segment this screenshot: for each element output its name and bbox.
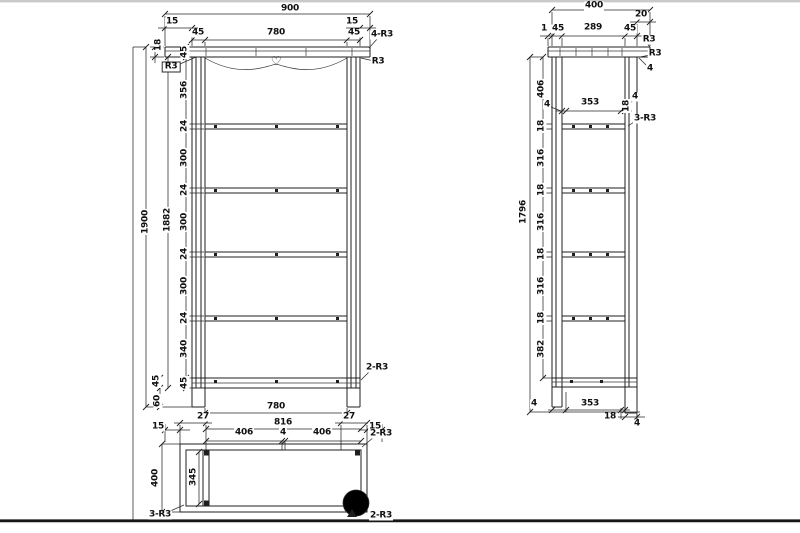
dim-side-289: 289 xyxy=(583,24,603,33)
note-2-r3-plan-bottom: 2-R3 xyxy=(369,512,393,521)
dim-plan-4: 4 xyxy=(279,429,287,438)
note-r3-side-top: R3 xyxy=(642,36,657,45)
dim-side-18-3: 18 xyxy=(538,247,547,261)
note-2-r3-plan-top: 2-R3 xyxy=(369,430,393,439)
dim-chain-45-top: 45 xyxy=(181,45,190,59)
front-posts xyxy=(192,57,360,388)
note-r3-side-mid: R3 xyxy=(648,50,663,59)
note-3-r3-plan: 3-R3 xyxy=(148,511,172,520)
plan-partition xyxy=(203,450,209,506)
dim-side-4-top: 4 xyxy=(646,65,654,74)
dim-side-1: 1 xyxy=(540,25,548,34)
dim-inner-width-bottom: 780 xyxy=(266,403,286,412)
dim-overall-width: 900 xyxy=(280,5,300,14)
dim-side-4-bottom-right: 4 xyxy=(633,420,641,429)
dim-plan-406-right: 406 xyxy=(312,429,332,438)
dim-chain-45-bottom: 45 xyxy=(181,376,190,390)
side-bottom-rail xyxy=(552,378,637,387)
dim-side-316-2: 316 xyxy=(538,212,547,232)
dim-inner-width-top: 780 xyxy=(266,29,286,38)
dim-side-20: 20 xyxy=(634,11,648,20)
dim-chain-300-1: 300 xyxy=(181,148,190,168)
dim-chain-24-3: 24 xyxy=(181,247,190,261)
note-3-r3-side: 3-R3 xyxy=(633,115,657,124)
dim-side-18-4: 18 xyxy=(538,311,547,325)
dim-overhang-right: 15 xyxy=(345,18,359,27)
drawing-canvas: 900151578045454-R31845R3R335624300243002… xyxy=(0,0,800,533)
front-top-rail xyxy=(165,47,370,57)
dim-side-4-bottom-left: 4 xyxy=(530,400,538,409)
dim-side-18-bottom: 18 xyxy=(603,413,617,422)
dim-overall-height: 1900 xyxy=(142,209,151,235)
dim-side-382: 382 xyxy=(538,339,547,359)
dim-side-316-3: 316 xyxy=(538,276,547,296)
generated-details xyxy=(143,7,653,515)
dim-chain-356: 356 xyxy=(181,80,190,100)
note-r3-right: R3 xyxy=(371,58,386,67)
dim-overhang-left: 15 xyxy=(165,18,179,27)
dim-inner-height: 1882 xyxy=(164,207,173,233)
dim-post-width-top-right: 45 xyxy=(347,29,361,38)
dim-side-316-1: 316 xyxy=(538,148,547,168)
dim-side-353-bottom: 353 xyxy=(580,400,600,409)
dim-chain-300-3: 300 xyxy=(181,276,190,296)
dim-side-18-1: 18 xyxy=(538,119,547,133)
dim-side-18-2: 18 xyxy=(538,183,547,197)
technical-drawing xyxy=(0,0,800,533)
dim-side-1796: 1796 xyxy=(520,199,529,225)
dim-top-rail-thickness: 18 xyxy=(155,38,164,52)
plan-detail-circle xyxy=(343,490,369,516)
dim-plan-406-left: 406 xyxy=(234,429,254,438)
dim-plan-345: 345 xyxy=(190,467,199,487)
dim-chain-24-2: 24 xyxy=(181,183,190,197)
dim-plan-400: 400 xyxy=(152,468,161,488)
dim-plan-27-right: 27 xyxy=(342,413,356,422)
front-leader-lines xyxy=(180,38,378,380)
dim-side-4-shelf-left: 4 xyxy=(543,101,551,110)
side-top-rail xyxy=(548,47,650,57)
dim-side-45-right: 45 xyxy=(623,25,637,34)
side-view xyxy=(530,10,656,421)
dim-chain-24-1: 24 xyxy=(181,119,190,133)
plan-corner-blocks xyxy=(204,451,360,506)
dim-chain-340: 340 xyxy=(181,339,190,359)
dim-chain-24-4: 24 xyxy=(181,311,190,325)
dim-side-4-shelf-right: 4 xyxy=(631,93,639,102)
dim-side-406: 406 xyxy=(538,79,547,99)
dim-chain-300-2: 300 xyxy=(181,212,190,232)
heart-icon: ♡ xyxy=(271,55,281,67)
note-r3-left: R3 xyxy=(162,62,181,73)
dim-side-width: 400 xyxy=(584,2,604,11)
dim-side-45-left: 45 xyxy=(551,25,565,34)
dim-plan-816: 816 xyxy=(273,419,293,428)
dim-side-18-shelf: 18 xyxy=(623,99,632,113)
dim-leg-height-60: 60 xyxy=(154,394,163,408)
note-2-r3-front: 2-R3 xyxy=(365,364,389,373)
dim-side-353-top: 353 xyxy=(580,99,600,108)
dim-bottom-rail-45: 45 xyxy=(153,374,162,388)
left-reference-line xyxy=(133,47,146,520)
plan-inner-rect xyxy=(186,450,361,506)
dim-plan-15-left: 15 xyxy=(151,423,165,432)
dim-post-width-top-left: 45 xyxy=(191,29,205,38)
dim-plan-27-left: 27 xyxy=(196,413,210,422)
note-4-r3: 4-R3 xyxy=(370,31,394,40)
